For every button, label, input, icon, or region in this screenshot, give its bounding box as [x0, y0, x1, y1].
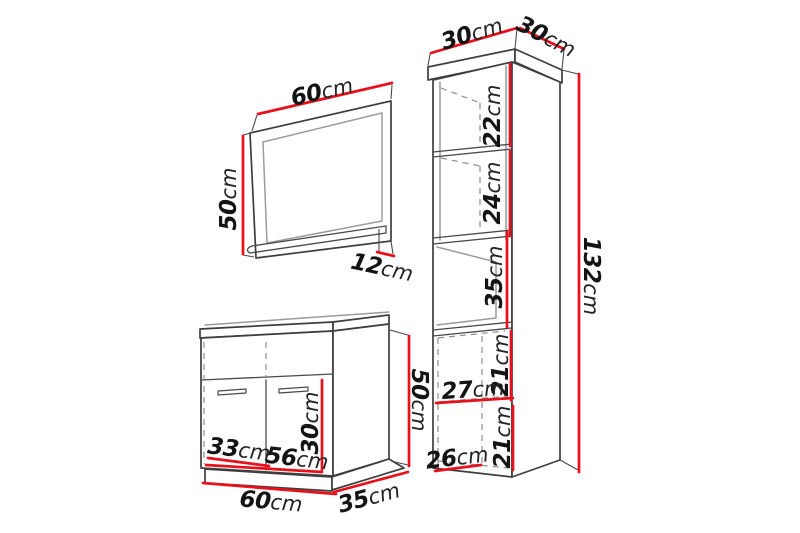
mirror-drawing: 60cm 50cm 12cm: [216, 72, 416, 287]
tall-side-face: [512, 62, 560, 477]
vanity-door-height-label: 30cm: [298, 391, 324, 454]
mirror-board-edge-extension: [391, 241, 393, 254]
vanity-height-label: 50cm: [406, 368, 432, 431]
tall-width-label: 30cm: [438, 12, 506, 55]
diagram-svg: 60cm 50cm 12cm 33cm 56cm 30cm 50cm 60cm …: [0, 0, 800, 533]
mirror-shelf-depth-label: 12cm: [348, 249, 415, 288]
tall-lower-shelf-label: 24cm: [480, 161, 506, 224]
tall-total-height-label: 132cm: [578, 237, 604, 316]
vanity-side-face: [333, 324, 389, 476]
vanity-width-label: 60cm: [238, 486, 303, 517]
tall-niche-label: 35cm: [482, 245, 508, 308]
mirror-height-label: 50cm: [216, 167, 242, 230]
tall-upper-shelf-label: 22cm: [480, 84, 506, 147]
vanity-height-extensions: [390, 330, 408, 465]
washbasin-cabinet-drawing: 33cm 56cm 30cm 50cm 60cm 35cm: [200, 312, 432, 519]
mirror-shelf-left-cap: [248, 246, 252, 253]
tall-height-extensions: [560, 70, 578, 470]
tall-cabinet-drawing: 30cm 30cm 22cm 24cm 35cm 21cm 27cm 21cm …: [424, 11, 604, 477]
furniture-dimensions-diagram: 60cm 50cm 12cm 33cm 56cm 30cm 50cm 60cm …: [0, 0, 800, 533]
mirror-width-label: 60cm: [288, 72, 355, 112]
tall-lower-door-label: 21cm: [490, 405, 516, 468]
